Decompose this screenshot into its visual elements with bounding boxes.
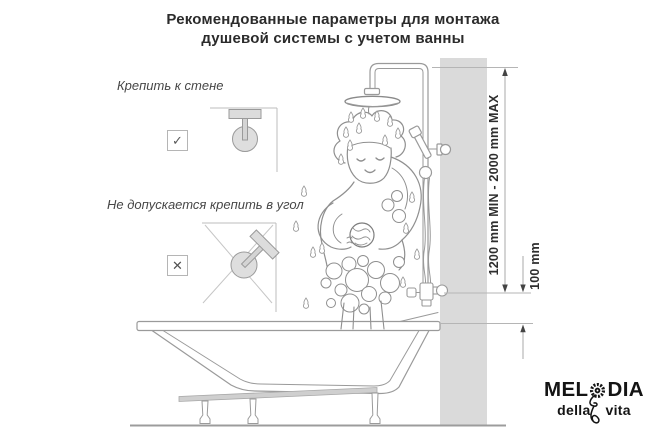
check-icon: ✓ (172, 134, 183, 147)
brand-logo: MEL DIA della vita (539, 380, 649, 418)
height-range-dimension-label: 1200 mm MIN - 2000 mm MAX (487, 95, 501, 276)
instruction-corner-label: Не допускается крепить в угол (107, 197, 304, 212)
arrow-down-icon (502, 285, 508, 293)
wall-mount-diagram (210, 108, 277, 172)
shower-mounting-infographic: Рекомендованные параметры для монтажа ду… (0, 0, 666, 444)
brand-suffix: DIA (607, 380, 644, 400)
page-title: Рекомендованные параметры для монтажа ду… (0, 11, 666, 48)
arrow-up-icon (502, 68, 508, 76)
allowed-checkbox: ✓ (167, 130, 188, 151)
rain-shower-head-icon (345, 89, 400, 107)
sponge (347, 223, 374, 247)
brand-prefix: MEL (544, 380, 588, 400)
title-line-2: душевой системы с учетом ванны (0, 30, 666, 49)
shower-hose (423, 178, 430, 283)
instruction-wall-label: Крепить к стене (117, 78, 223, 93)
person-illustration (318, 102, 421, 329)
offset-dimension-label: 100 mm (528, 242, 542, 290)
wall (440, 58, 487, 426)
forbidden-checkbox: ✕ (167, 255, 188, 276)
arrow-up-icon (520, 325, 525, 333)
corner-mount-diagram (202, 223, 279, 312)
bathtub (137, 313, 440, 424)
title-line-1: Рекомендованные параметры для монтажа (0, 11, 666, 30)
soap-bubbles (321, 191, 406, 315)
arrow-down-icon (520, 285, 525, 293)
flower-stem-icon (586, 394, 602, 428)
cross-icon: ✕ (172, 259, 183, 272)
tagline-right: vita (606, 403, 631, 418)
